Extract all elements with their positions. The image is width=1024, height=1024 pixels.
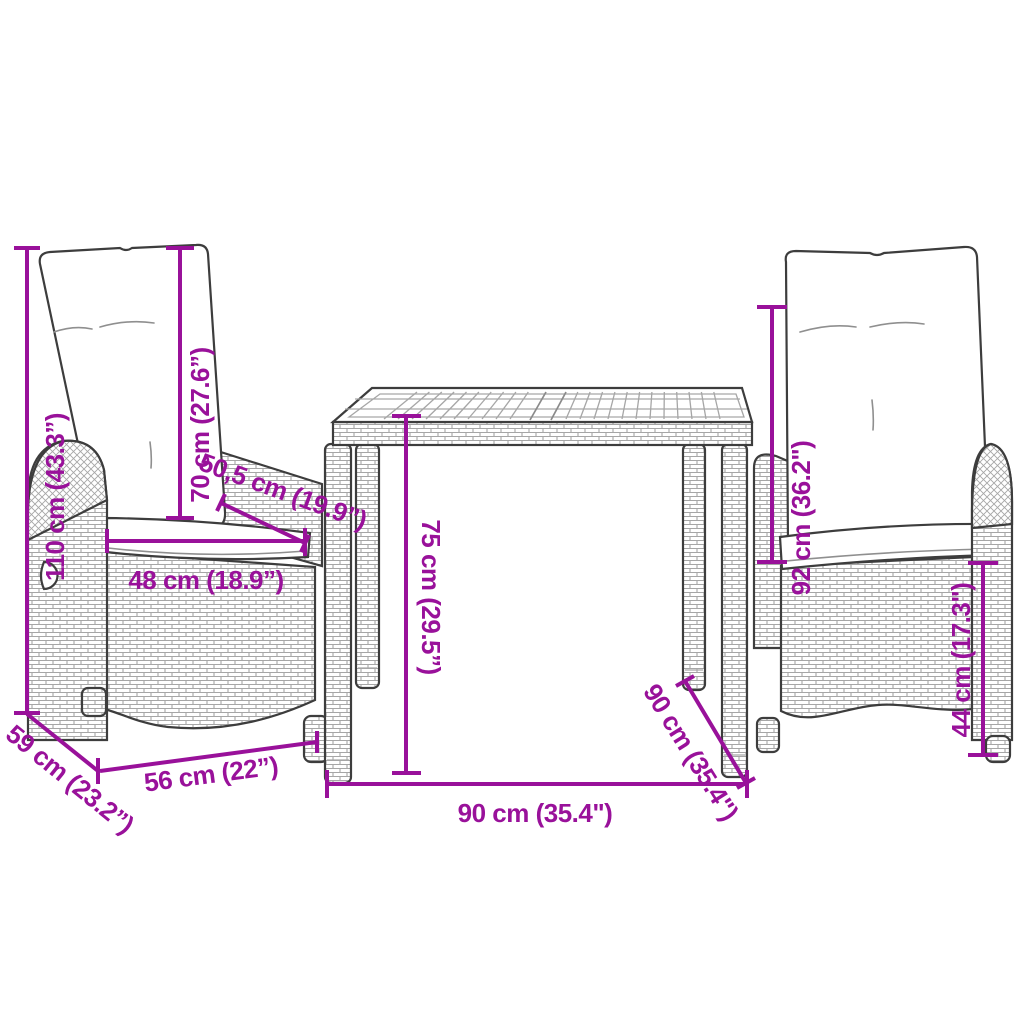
dim-line-table-width (327, 770, 747, 798)
dimension-label-chair-total-height: 110 cm (43.3”) (42, 413, 68, 581)
right-chair-armrest-foot (986, 736, 1010, 762)
dimension-label-table-width: 90 cm (35.4") (458, 800, 613, 826)
dimension-label-chair-seat-width: 48 cm (18.9”) (128, 567, 283, 593)
diagram-canvas: 110 cm (43.3”) 70 cm (27.6”) 50,5 cm (19… (0, 0, 1024, 1024)
furniture-line-art (0, 0, 1024, 1024)
table-leg-front-right (722, 444, 747, 777)
dimension-label-right-chair-height: 92 cm (36.2") (788, 441, 814, 596)
table-leg-back-left (356, 444, 379, 688)
left-chair-armrest-foot (82, 688, 106, 716)
dimension-label-right-chair-seat-height: 44 cm (17.3") (948, 583, 974, 738)
right-chair-back-cushion (786, 247, 988, 557)
table-leg-back-right (683, 444, 705, 690)
right-chair-front-foot (757, 718, 779, 752)
table-apron (333, 422, 752, 445)
dimension-label-table-height: 75 cm (29.5”) (418, 519, 444, 674)
